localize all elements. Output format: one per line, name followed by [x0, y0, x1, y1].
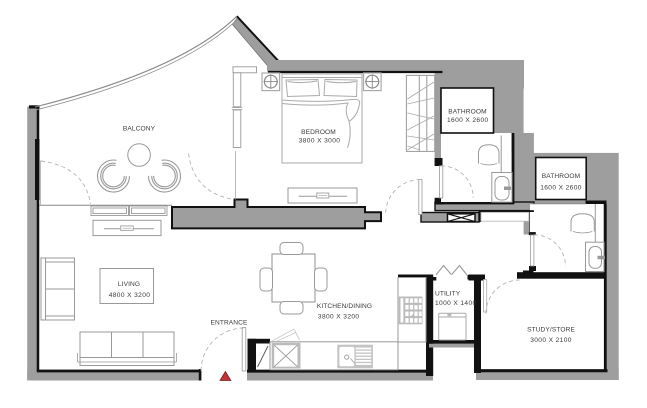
svg-text:BALCONY: BALCONY [123, 125, 156, 132]
svg-text:BATHROOM: BATHROOM [448, 109, 486, 116]
svg-text:3000 X 2100: 3000 X 2100 [530, 337, 572, 344]
svg-text:1600 X 2600: 1600 X 2600 [540, 184, 582, 191]
svg-text:3800 X 3200: 3800 X 3200 [318, 313, 360, 320]
svg-text:UTILITY: UTILITY [435, 290, 461, 297]
svg-text:1000 X 1400: 1000 X 1400 [435, 300, 477, 307]
svg-text:LIVING: LIVING [118, 281, 140, 288]
svg-text:3800 X 3000: 3800 X 3000 [299, 137, 341, 144]
svg-text:KITCHEN/DINING: KITCHEN/DINING [317, 303, 372, 310]
svg-text:ENTRANCE: ENTRANCE [210, 319, 248, 326]
svg-text:BEDROOM: BEDROOM [301, 129, 336, 136]
svg-text:4800 X 3200: 4800 X 3200 [109, 292, 151, 299]
svg-text:STUDY/STORE: STUDY/STORE [527, 326, 575, 333]
svg-text:BATHROOM: BATHROOM [542, 173, 580, 180]
svg-text:1600 X 2600: 1600 X 2600 [447, 117, 489, 124]
